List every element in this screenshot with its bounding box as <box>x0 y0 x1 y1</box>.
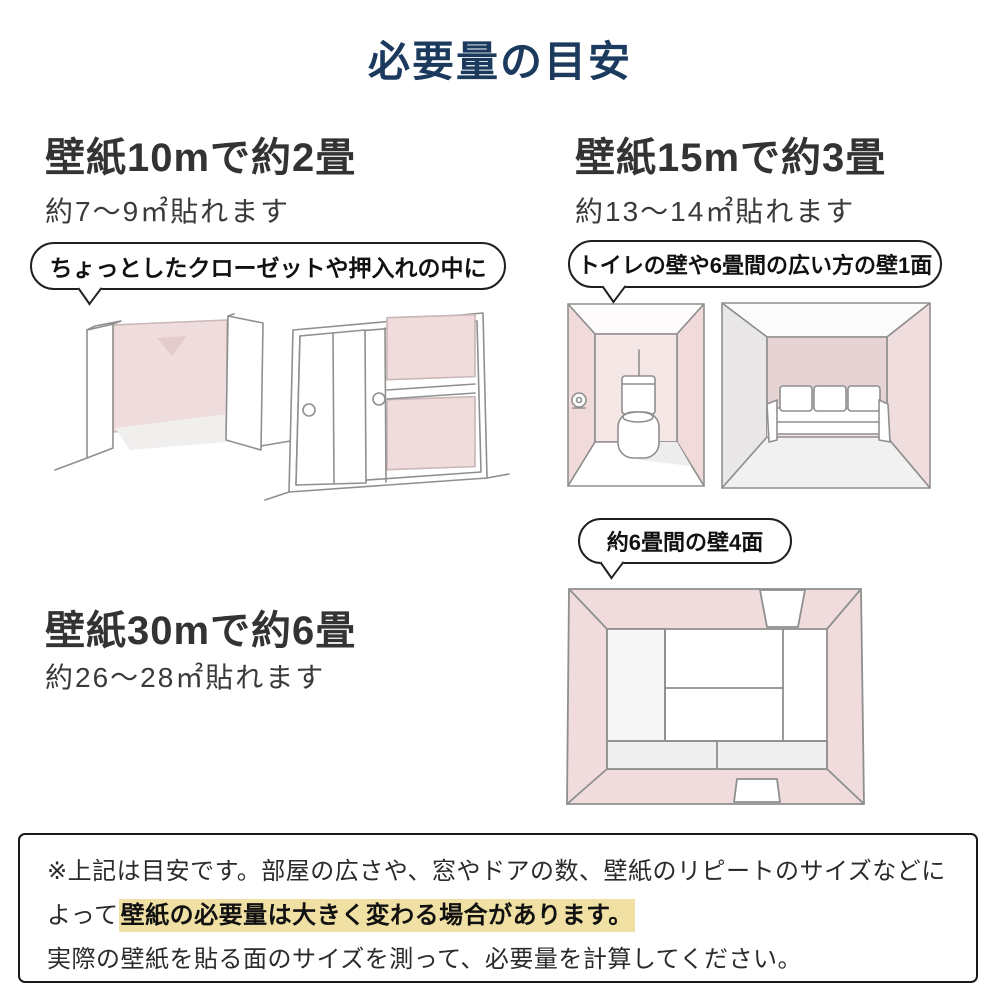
section-30m-heading: 壁紙30mで約6畳 <box>45 598 356 656</box>
section-10m-heading: 壁紙10mで約2畳 <box>45 125 356 183</box>
six-tatami-room-top-view-illustration <box>565 583 868 809</box>
note-line-1: ※上記は目安です。部屋の広さや、窓やドアの数、壁紙のリピートのサイズなどに <box>47 850 956 894</box>
section-10m-subtext: 約7〜9㎡貼れます <box>45 190 290 230</box>
sofa-room-illustration <box>720 300 933 492</box>
toilet-room-illustration <box>565 300 710 492</box>
page-title: 必要量の目安 <box>0 28 1000 89</box>
disclaimer-note-box: ※上記は目安です。部屋の広さや、窓やドアの数、壁紙のリピートのサイズなどに よっ… <box>18 833 978 983</box>
section-10m-bubble-label: ちょっとしたクローゼットや押入れの中に <box>50 249 487 283</box>
note-line-2-prefix: よって <box>47 902 119 929</box>
wallpaper-quantity-guide-infographic: 必要量の目安 壁紙10mで約2畳 約7〜9㎡貼れます ちょっとしたクローゼットや… <box>0 0 1000 1000</box>
closets-illustration <box>35 300 510 525</box>
note-line-2-highlight: 壁紙の必要量は大きく変わる場合があります。 <box>119 899 635 932</box>
section-30m-bubble: 約6畳間の壁4面 <box>578 518 792 564</box>
note-line-2: よって壁紙の必要量は大きく変わる場合があります。 <box>47 894 956 938</box>
section-15m-heading: 壁紙15mで約3畳 <box>575 125 886 183</box>
section-30m-subtext: 約26〜28㎡貼れます <box>45 656 325 696</box>
note-line-3: 実際の壁紙を貼る面のサイズを測って、必要量を計算してください。 <box>47 938 956 982</box>
section-15m-subtext: 約13〜14㎡貼れます <box>575 190 855 230</box>
section-30m-bubble-label: 約6畳間の壁4面 <box>607 525 763 557</box>
section-15m-bubble-label: トイレの壁や6畳間の広い方の壁1面 <box>578 248 932 280</box>
section-10m-bubble: ちょっとしたクローゼットや押入れの中に <box>30 242 506 290</box>
section-15m-bubble: トイレの壁や6畳間の広い方の壁1面 <box>568 240 942 288</box>
